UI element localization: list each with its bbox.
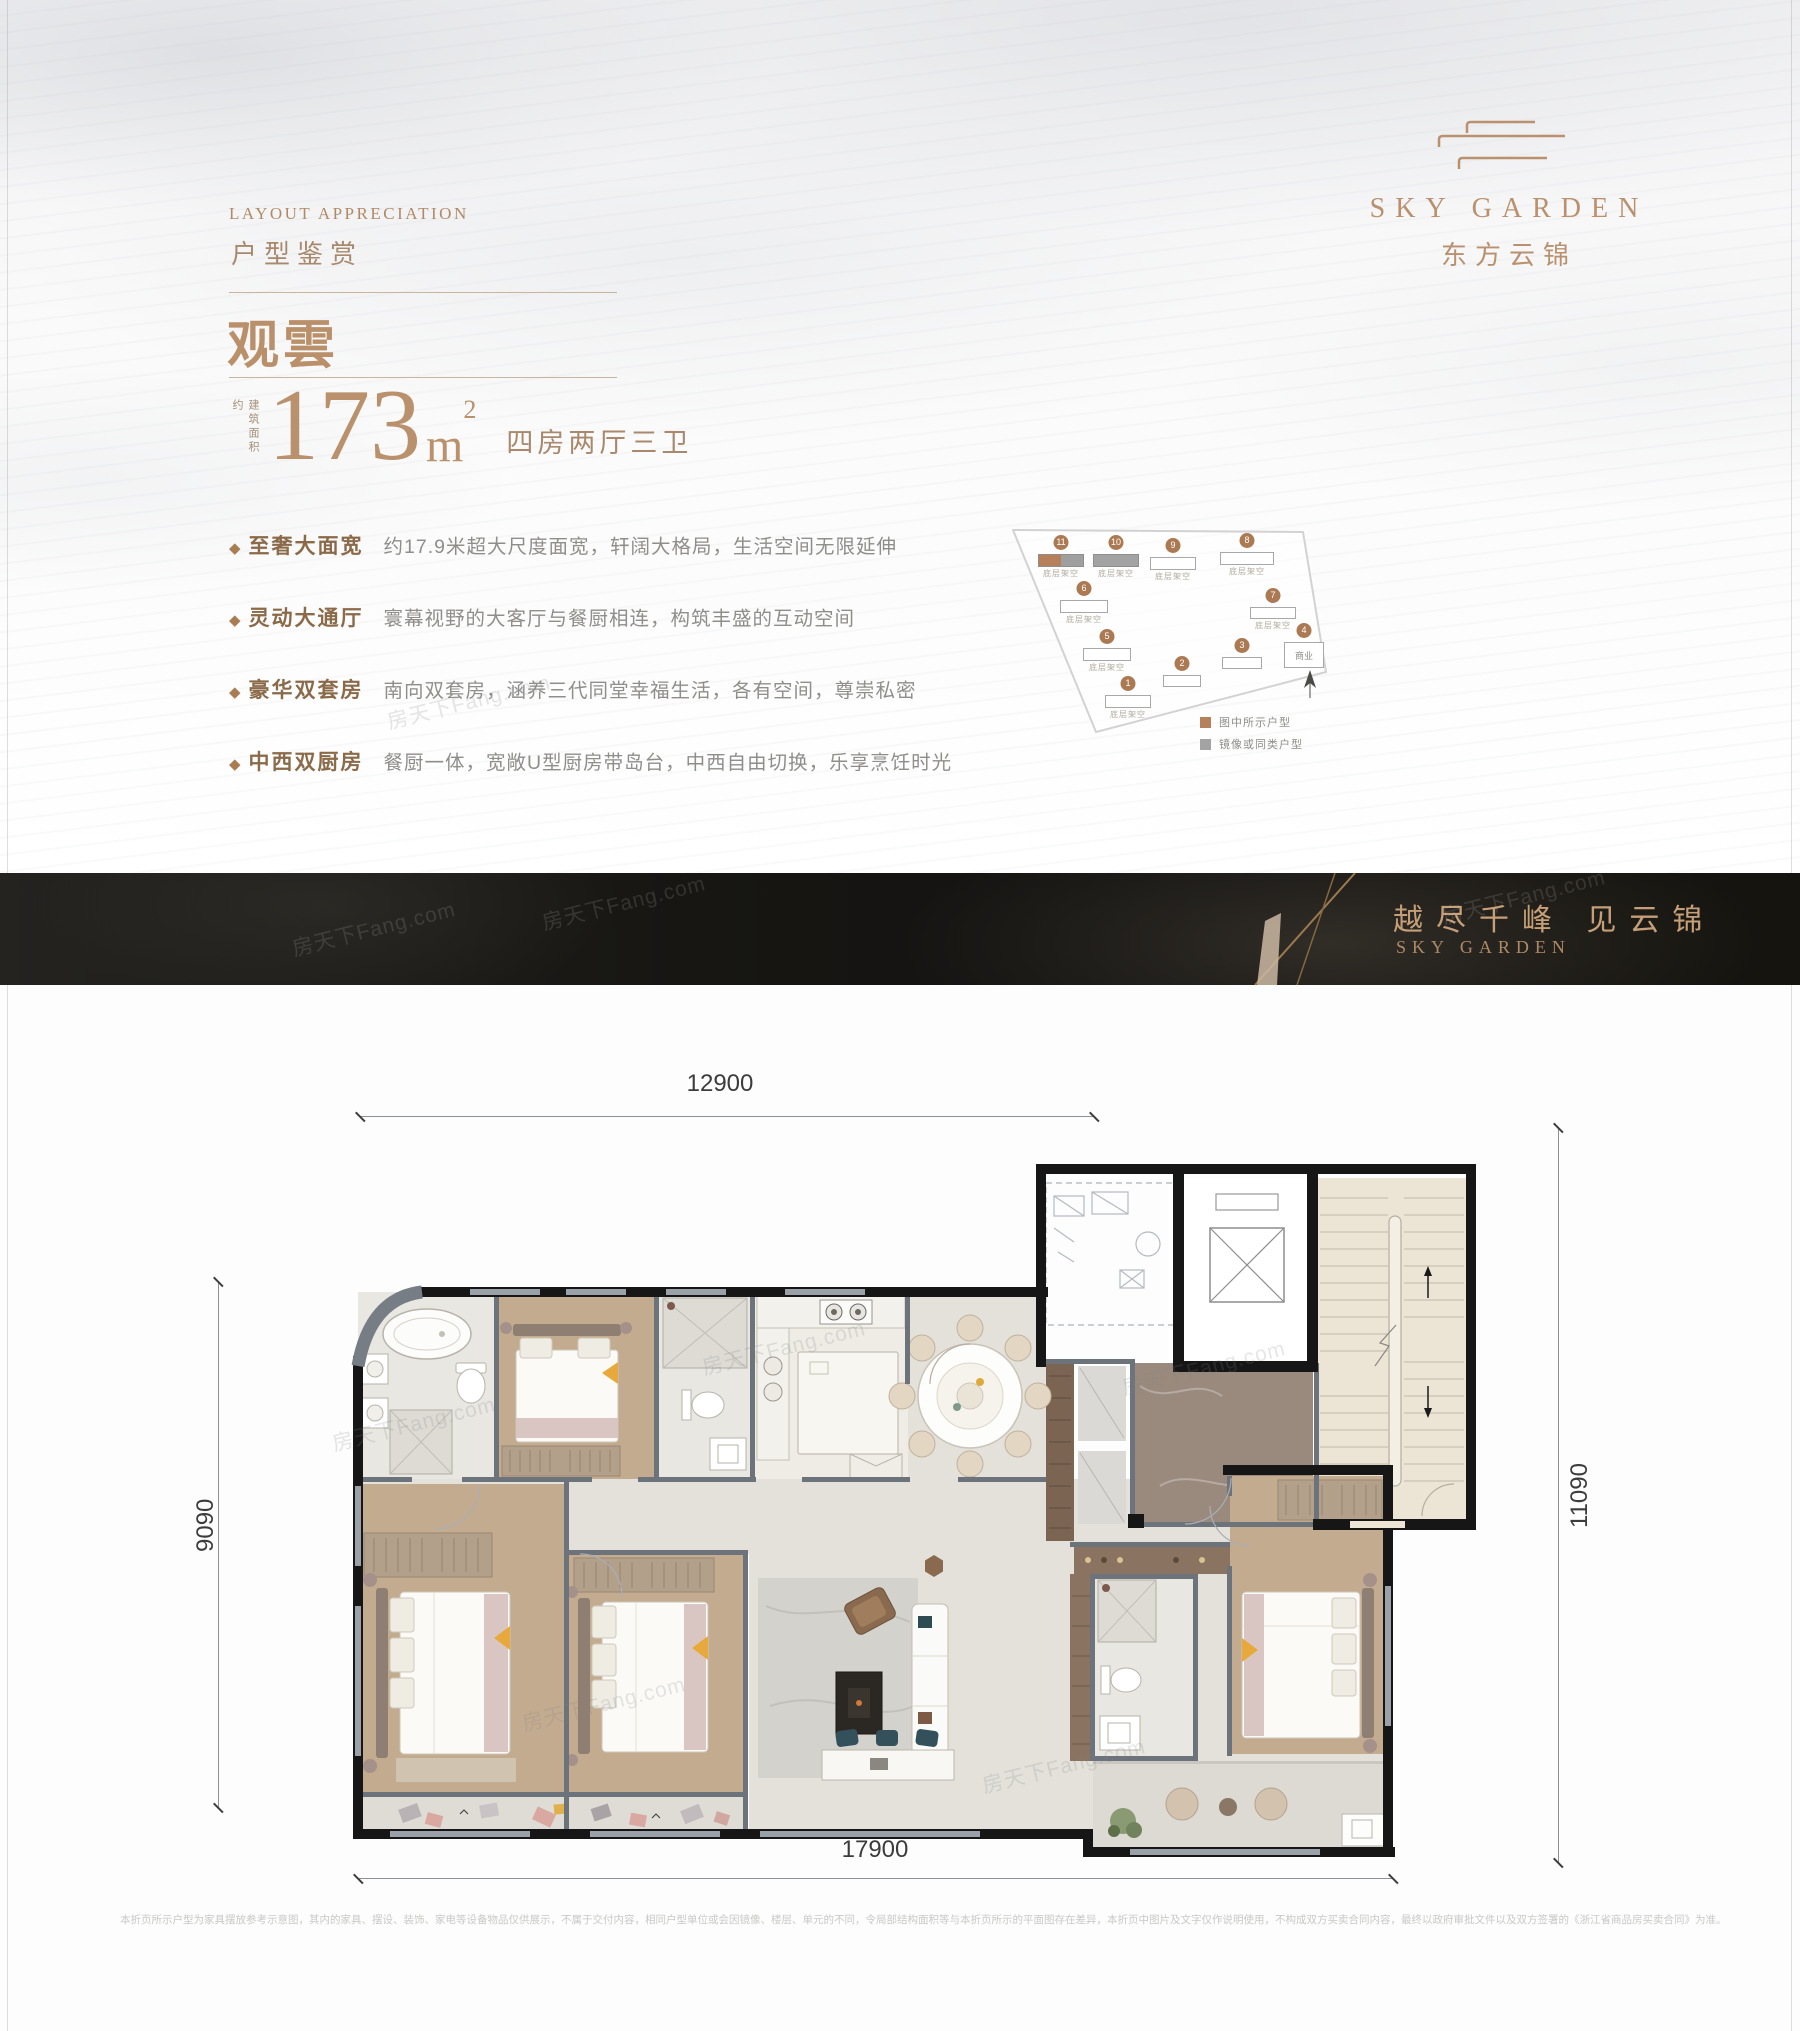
eyebrow-english: LAYOUT APPRECIATION [229, 204, 469, 224]
pavilion-roof-icon [1434, 116, 1584, 180]
page-edge-left [7, 0, 8, 2031]
divider-top [229, 292, 617, 293]
bedroom-2 [566, 1558, 714, 1766]
building: 8 底层架空 [1220, 552, 1274, 565]
poster-page: LAYOUT APPRECIATION 户型鉴赏 观雲 建筑面积约 173 m2… [0, 0, 1800, 2031]
eyebrow-chinese: 户型鉴赏 [231, 234, 363, 271]
building-caption: 底层架空 [1155, 571, 1191, 582]
floor-plan [330, 1066, 1570, 1876]
dimension-right-line [1558, 1128, 1559, 1862]
feature-desc: 餐厨一体，宽敞U型厨房带岛台，中西自由切换，乐享烹饪时光 [384, 746, 953, 775]
building-caption: 底层架空 [1229, 566, 1265, 577]
logo-chinese: 东方云锦 [1359, 235, 1659, 272]
building-number: 4 [1297, 623, 1312, 638]
building-highlighted: 11 底层架空 [1038, 554, 1084, 567]
area-unit: m2 [426, 424, 476, 467]
brand-logo: SKY GARDEN 东方云锦 [1359, 116, 1659, 272]
logo-english: SKY GARDEN [1359, 193, 1659, 225]
building: 2 [1163, 675, 1201, 687]
disclaimer-text: 本折页所示户型为家具摆放参考示意图，其内的家具、摆设、装饰、家电等设备物品仅供展… [120, 1912, 1720, 1927]
building-number: 8 [1240, 533, 1255, 548]
gold-line-decoration [1235, 873, 1395, 985]
banner-brand: SKY GARDEN [1396, 937, 1571, 958]
dining-table [889, 1315, 1051, 1477]
building-number: 7 [1266, 588, 1281, 603]
feature-item: ◆ 中西双厨房 餐厨一体，宽敞U型厨房带岛台，中西自由切换，乐享烹饪时光 [229, 746, 952, 776]
diamond-icon: ◆ [229, 683, 241, 701]
unit-name: 观雲 [227, 303, 339, 378]
building-number: 6 [1077, 581, 1092, 596]
building-number: 5 [1100, 629, 1115, 644]
building-number: 3 [1235, 638, 1250, 653]
feature-item: ◆ 豪华双套房 南向双套房，涵养三代同堂幸福生活，各有空间，尊崇私密 [229, 674, 952, 704]
dimension-bottom-line [358, 1878, 1394, 1879]
building-caption: 商业 [1295, 649, 1313, 662]
feature-desc: 约17.9米超大尺度面宽，轩阔大格局，生活空间无限延伸 [384, 530, 897, 559]
feature-label: 中西双厨房 [249, 746, 364, 776]
area-prefix: 建筑面积约 [229, 399, 261, 463]
dimension-left-label: 9090 [192, 1499, 220, 1552]
area-row: 建筑面积约 173 m2 四房两厅三卫 [229, 383, 692, 467]
north-arrow-icon [1300, 670, 1320, 700]
building-number: 11 [1054, 535, 1069, 550]
dimension-right-label: 11090 [1566, 1463, 1594, 1528]
page-edge-right [1791, 0, 1792, 2031]
building-caption: 底层架空 [1255, 620, 1291, 631]
room-type: 四房两厅三卫 [506, 421, 692, 460]
dimension-top-line [360, 1116, 1095, 1117]
building-number: 10 [1109, 535, 1124, 550]
building: 6 底层架空 [1060, 600, 1108, 613]
area-value: 173 [268, 385, 421, 467]
watermark: 房天下Fang.com [539, 873, 709, 937]
building: 7 底层架空 [1250, 607, 1296, 619]
building-number: 1 [1121, 676, 1136, 691]
diamond-icon: ◆ [229, 611, 241, 629]
legend-swatch-mirror [1200, 739, 1211, 750]
building-mirror: 10 底层架空 [1093, 554, 1139, 567]
building-commercial: 4 商业 [1284, 642, 1324, 668]
building: 3 [1222, 657, 1262, 669]
legend-label: 图中所示户型 [1219, 714, 1291, 730]
feature-label: 灵动大通厅 [249, 602, 364, 632]
dimension-left-line [218, 1282, 219, 1807]
building: 9 底层架空 [1150, 557, 1196, 570]
building-caption: 底层架空 [1098, 568, 1134, 579]
open-air-area [1046, 1183, 1174, 1325]
diamond-icon: ◆ [229, 539, 241, 557]
legend-item: 图中所示户型 [1200, 714, 1291, 730]
building-caption: 底层架空 [1110, 709, 1146, 720]
feature-desc: 寰幕视野的大客厅与餐厨相连，构筑丰盛的互动空间 [384, 602, 856, 631]
building-caption: 底层架空 [1089, 662, 1125, 673]
dimension-top-label: 12900 [620, 1070, 820, 1098]
feature-label: 至奢大面宽 [249, 530, 364, 560]
elevator [1210, 1194, 1284, 1302]
legend-label: 镜像或同类户型 [1219, 736, 1303, 752]
watermark: 房天下Fang.com [289, 893, 459, 963]
building: 1 底层架空 [1105, 695, 1151, 708]
building-number: 9 [1166, 538, 1181, 553]
building-caption: 底层架空 [1043, 568, 1079, 579]
feature-label: 豪华双套房 [249, 674, 364, 704]
building-caption: 底层架空 [1066, 614, 1102, 625]
legend-swatch-main [1200, 717, 1211, 728]
dimension-bottom-label: 17900 [800, 1836, 950, 1864]
area-unit-letter: m [426, 419, 463, 472]
building: 5 底层架空 [1083, 648, 1131, 661]
building-number: 2 [1175, 656, 1190, 671]
dark-banner: 越尽千峰 见云锦 SKY GARDEN 房天下Fang.com 房天下Fang.… [0, 873, 1800, 985]
diamond-icon: ◆ [229, 755, 241, 773]
area-unit-sup: 2 [463, 395, 476, 424]
feature-item: ◆ 至奢大面宽 约17.9米超大尺度面宽，轩阔大格局，生活空间无限延伸 [229, 530, 952, 560]
feature-item: ◆ 灵动大通厅 寰幕视野的大客厅与餐厨相连，构筑丰盛的互动空间 [229, 602, 952, 632]
feature-list: ◆ 至奢大面宽 约17.9米超大尺度面宽，轩阔大格局，生活空间无限延伸 ◆ 灵动… [229, 530, 952, 818]
site-plan: 1 底层架空 2 3 4 商业 5 底层架空 6 底层架空 7 底层架空 8 底… [1000, 512, 1345, 777]
legend-item: 镜像或同类户型 [1200, 736, 1303, 752]
